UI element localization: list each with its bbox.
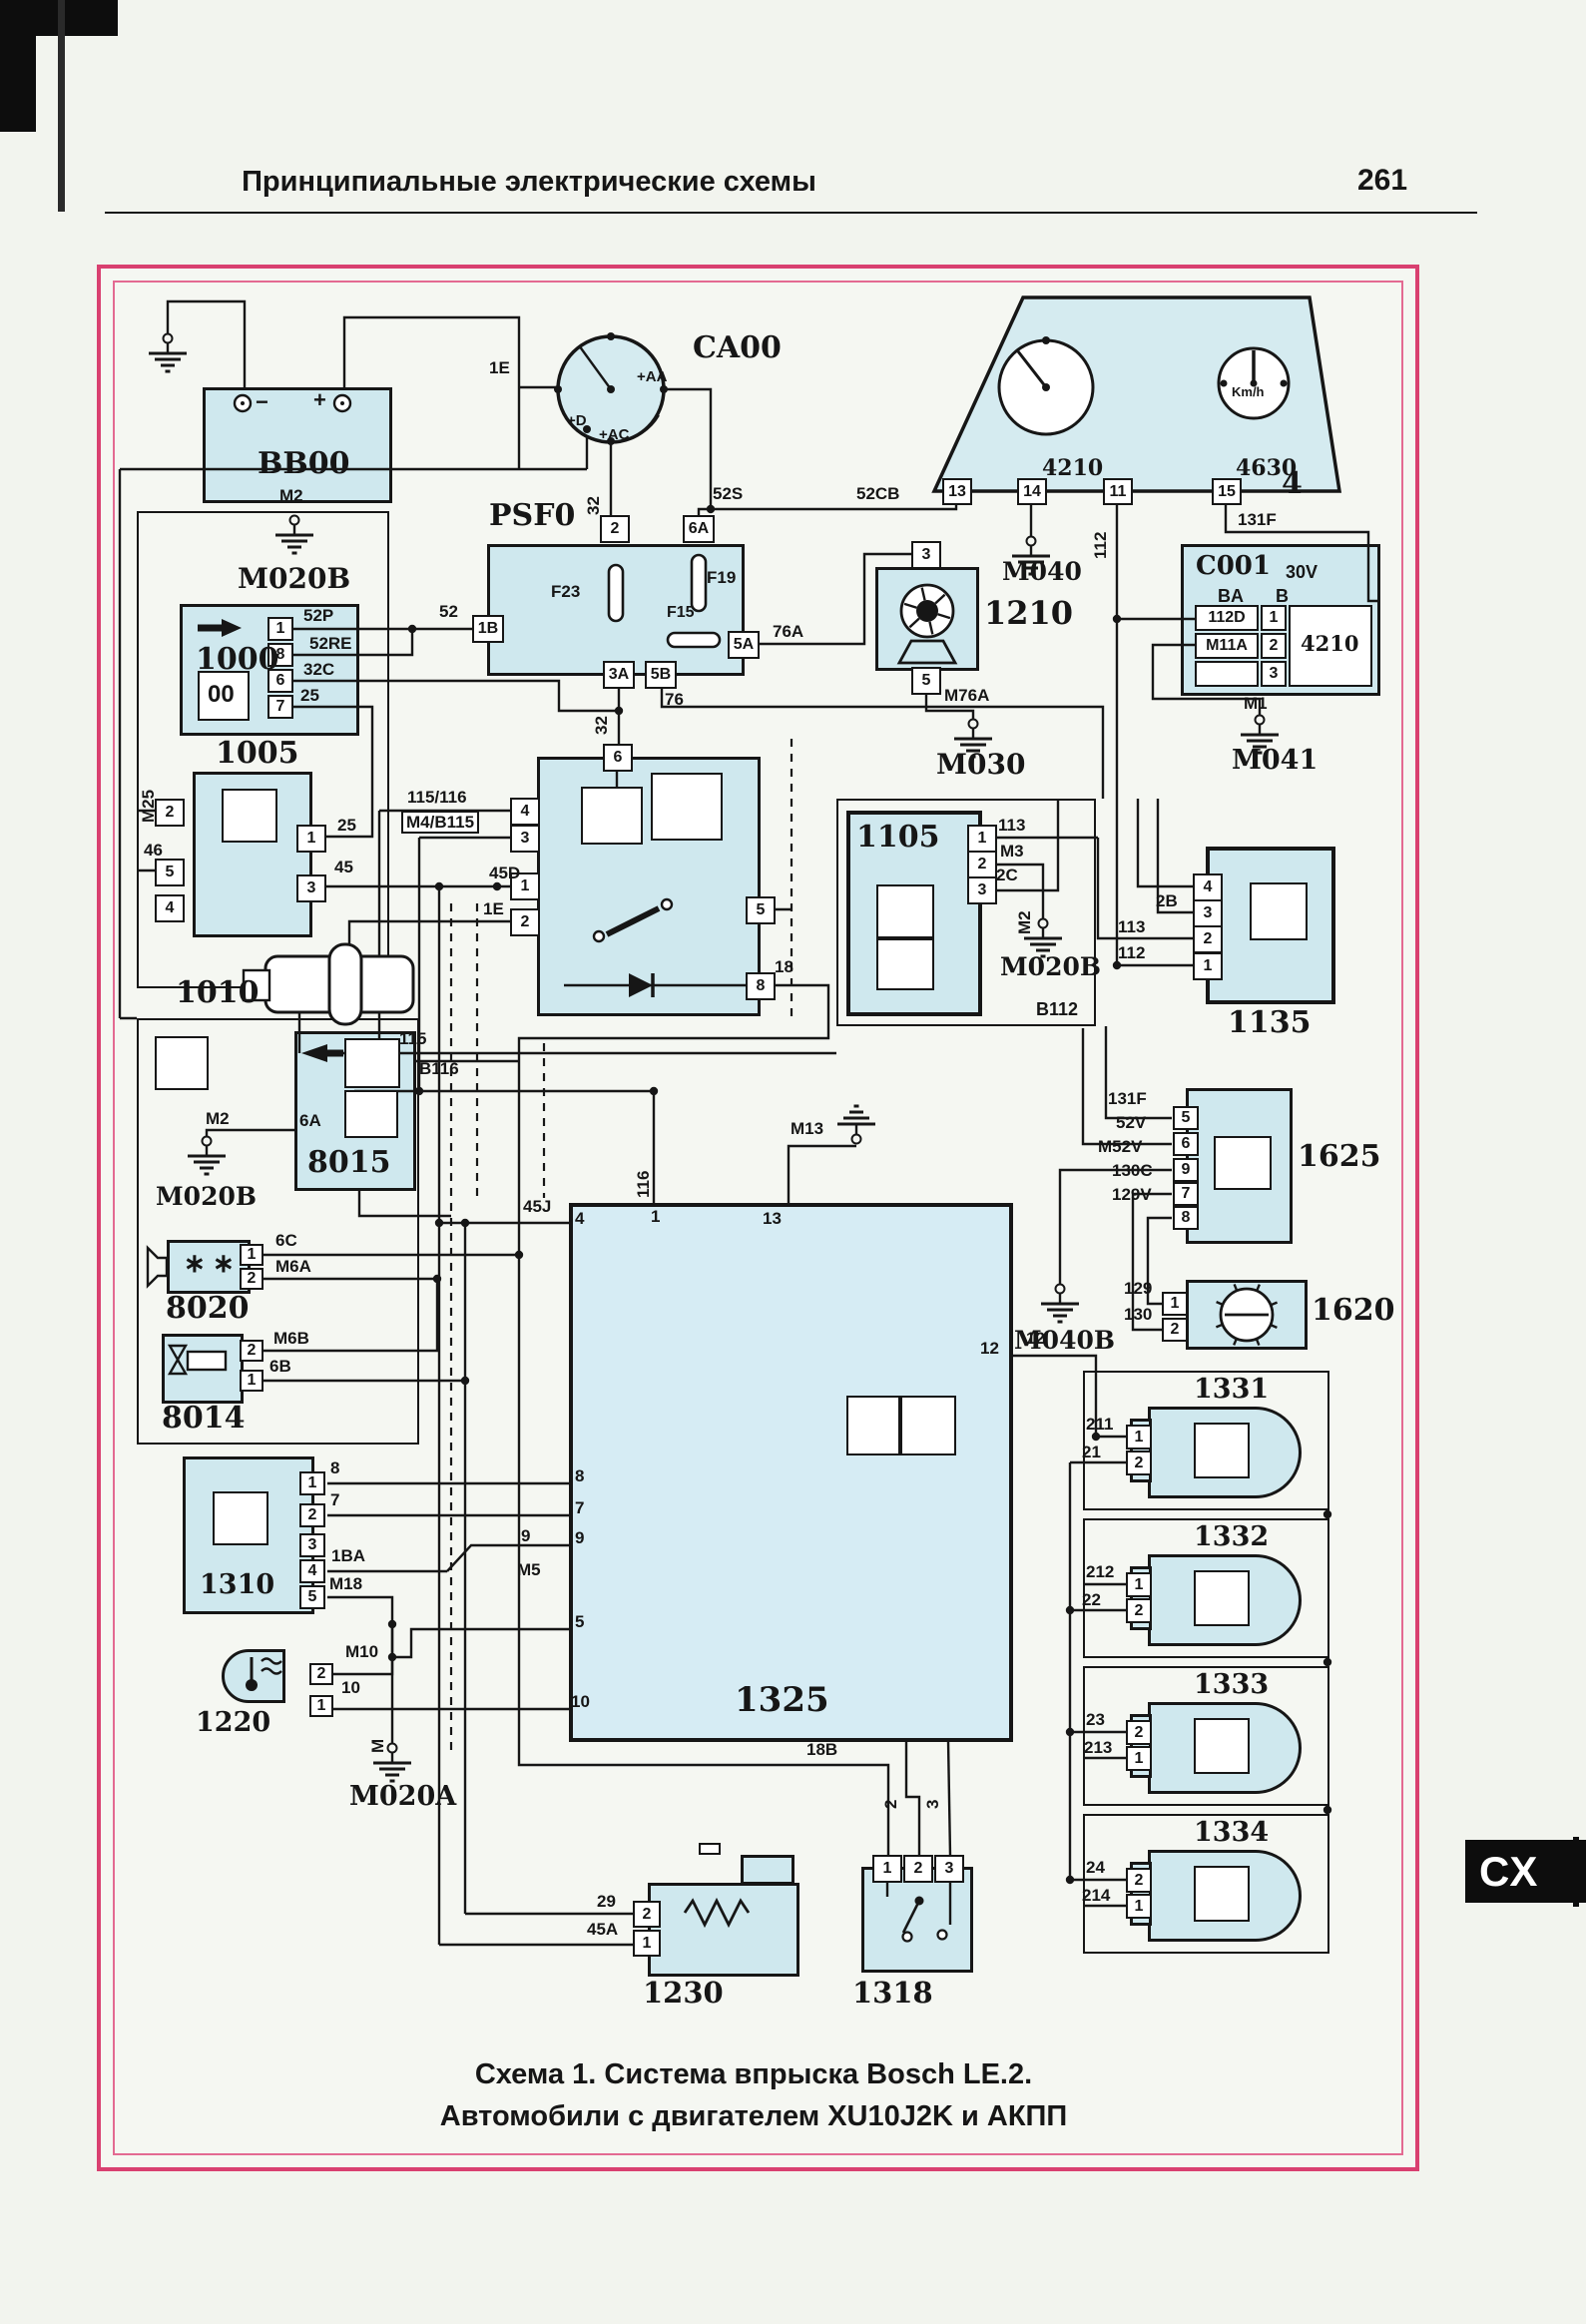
tab-edge-mark (1573, 1837, 1579, 1907)
wire (1138, 799, 1193, 886)
label-M3: M3 (1000, 843, 1024, 860)
label-45J: 45J (523, 1198, 551, 1215)
label-18: 18 (775, 958, 793, 975)
ground-symbol (1041, 1285, 1079, 1323)
label-1010: 1010 (176, 978, 260, 1008)
ground-symbol (149, 334, 187, 372)
junction-dot (1323, 1658, 1331, 1666)
label-45D: 45D (489, 865, 520, 881)
label-M13: M13 (791, 1120, 823, 1137)
label-M25: M25 (140, 790, 157, 823)
junction-dot (1323, 1806, 1331, 1814)
page-title: Принципиальные электрические схемы (190, 166, 868, 199)
label-129: 129 (1124, 1280, 1152, 1297)
label-M6B: M6B (273, 1330, 309, 1347)
wire (519, 985, 888, 1855)
battery-terminals-icon (235, 395, 350, 411)
label-+AC: +AC (599, 427, 629, 442)
pin-1: 1 (1193, 952, 1223, 980)
icon-box (344, 1090, 398, 1138)
junction-dot (461, 1219, 469, 1227)
label-2C: 2C (996, 867, 1018, 883)
label-1E: 1E (483, 900, 504, 917)
pin-1: 1 (296, 825, 326, 853)
label-76: 76 (665, 691, 684, 708)
label-7: 7 (330, 1491, 339, 1508)
label-4210: 4210 (1042, 457, 1103, 479)
pin-2: 2 (1126, 1868, 1152, 1893)
label-+: + (313, 389, 326, 411)
wire (948, 1741, 950, 1855)
pin-3: 3 (911, 541, 941, 569)
pin-1: 1 (1261, 605, 1287, 631)
pin-5: 5 (911, 667, 941, 695)
pin-2: 2 (967, 851, 997, 878)
pin-7: 7 (267, 695, 293, 719)
junction-dot (1066, 1728, 1074, 1736)
label-4210: 4210 (1301, 633, 1358, 654)
label-1105: 1105 (856, 823, 940, 853)
pin-1: 1 (1126, 1572, 1152, 1597)
wire (789, 1146, 856, 1203)
junction-dot (493, 882, 501, 890)
label-1333: 1333 (1194, 1671, 1269, 1698)
ground-symbol (188, 1137, 226, 1175)
wire (662, 675, 1103, 799)
manual-page: Принципиальные электрические схемы 261 С… (0, 0, 1586, 2324)
label-46: 46 (144, 842, 163, 859)
pin-2: 2 (240, 1268, 264, 1290)
speaker-icon (148, 1248, 167, 1286)
pin-8: 8 (1173, 1206, 1199, 1230)
icon-box (1194, 1423, 1250, 1478)
label-6C: 6C (275, 1232, 297, 1249)
label-2: 2 (882, 1800, 899, 1809)
label-29: 29 (597, 1893, 616, 1910)
iac-motor-icon (899, 585, 955, 663)
pin-1: 1 (240, 1244, 264, 1266)
ground-symbol (837, 1106, 875, 1144)
label-9: 9 (575, 1529, 584, 1546)
label-B116: B116 (419, 1060, 459, 1077)
junction-dot (435, 882, 443, 890)
pin-3: 3 (1261, 661, 1287, 687)
label-6B: 6B (269, 1358, 291, 1375)
label-M1: M1 (1244, 695, 1268, 712)
valve-icon (170, 1346, 226, 1374)
icon-box (846, 1396, 900, 1455)
junction-dot (435, 1219, 443, 1227)
pin-4: 4 (299, 1559, 325, 1583)
label-8: 8 (330, 1459, 339, 1476)
label-M040: M040 (1002, 559, 1082, 584)
pin-2: 2 (309, 1663, 333, 1685)
junction-dot (515, 1251, 523, 1259)
label-00: 00 (208, 683, 235, 707)
label-M10: M10 (345, 1643, 378, 1660)
pin-4: 4 (510, 798, 540, 826)
section-tab-cx: CX (1465, 1840, 1586, 1903)
pin-13: 13 (942, 478, 972, 505)
pin-3A: 3A (603, 661, 635, 689)
pin-1: 1 (872, 1855, 902, 1883)
junction-dot (1323, 1510, 1331, 1518)
pin-4: 4 (155, 894, 185, 922)
pin-3: 3 (1193, 899, 1223, 927)
pin-1: 1 (1126, 1425, 1152, 1450)
fuse-h-icon (668, 633, 720, 647)
label-4: 4 (575, 1210, 584, 1227)
icon-box (900, 1396, 956, 1455)
label-1310: 1310 (200, 1571, 274, 1598)
label-45A: 45A (587, 1921, 618, 1938)
label-1210: 1210 (984, 597, 1073, 629)
label-8: 8 (575, 1467, 584, 1484)
pin-1: 1 (1162, 1292, 1188, 1316)
pin-7: 7 (1173, 1182, 1199, 1206)
junction-dot (388, 1653, 396, 1661)
pin-2: 2 (1261, 633, 1287, 659)
page-number: 261 (1357, 164, 1407, 198)
label-21: 21 (1082, 1444, 1101, 1460)
icon-box (1250, 882, 1308, 940)
icon-box (1194, 1718, 1250, 1774)
label-116: 116 (635, 1171, 652, 1198)
fuse-v-icon (692, 555, 706, 611)
label-Km/h: Km/h (1232, 385, 1265, 398)
pin-5: 5 (155, 859, 185, 886)
wire (1098, 838, 1193, 938)
pin-4: 4 (1193, 873, 1223, 901)
icon-box (213, 1491, 268, 1545)
pin-2: 2 (510, 908, 540, 936)
fuse-v-icon (609, 565, 623, 621)
label-1325: 1325 (735, 1683, 829, 1717)
junction-dot (1113, 615, 1121, 623)
wire (293, 707, 372, 837)
label-25: 25 (337, 817, 356, 834)
pin-3: 3 (299, 1533, 325, 1557)
label-1331: 1331 (1194, 1376, 1269, 1403)
label-C001: C001 (1196, 553, 1271, 579)
label-2B: 2B (1156, 892, 1178, 909)
label-25: 25 (300, 687, 319, 704)
label-76A: 76A (773, 623, 803, 640)
pin-5: 5 (746, 896, 776, 924)
wire (207, 1130, 294, 1136)
label-9: 9 (521, 1527, 530, 1544)
icon-box (155, 1036, 209, 1090)
caption-line-1: Схема 1. Система впрыска Bosch LE.2. (354, 2058, 1153, 2091)
junction-dot (433, 1275, 441, 1283)
label-18B: 18B (806, 1741, 837, 1758)
pin-2: 2 (240, 1340, 264, 1362)
label-213: 213 (1084, 1739, 1112, 1756)
pin-3: 3 (296, 874, 326, 902)
label-M6A: M6A (275, 1258, 311, 1275)
label-−: − (256, 391, 268, 413)
arrow-left-icon (301, 1044, 343, 1062)
label-131F: 131F (1108, 1090, 1147, 1107)
pin-1: 1 (633, 1930, 661, 1957)
label-32C: 32C (303, 661, 334, 678)
icon-box (651, 773, 723, 841)
label-M2: M2 (279, 487, 303, 504)
label-BA: BA (1218, 587, 1244, 605)
pin-3: 3 (510, 825, 540, 853)
label-115/116: 115/116 (407, 789, 467, 806)
ground-symbol (275, 516, 313, 554)
label-+AA: +AA (637, 369, 667, 384)
label-1334: 1334 (1194, 1819, 1269, 1846)
icon-box (344, 1038, 400, 1088)
pin-9: 9 (1173, 1158, 1199, 1182)
junction-dot (1092, 1433, 1100, 1441)
pin-M11A: M11A (1195, 633, 1259, 659)
label-52S: 52S (713, 485, 743, 502)
speedometer-icon (1219, 348, 1289, 418)
label-12: 12 (980, 1340, 999, 1357)
label-112: 112 (1092, 532, 1109, 559)
wire (168, 301, 245, 387)
pin-1: 1 (267, 617, 293, 641)
label-M: M (369, 1739, 386, 1753)
label-1005: 1005 (216, 739, 299, 769)
pin-1B: 1B (472, 615, 504, 643)
label-112: 112 (1118, 944, 1145, 961)
label-1625: 1625 (1298, 1142, 1381, 1172)
junction-dot (388, 1620, 396, 1628)
label-10: 10 (341, 1679, 360, 1696)
label-52P: 52P (303, 607, 333, 624)
pin-15: 15 (1212, 478, 1242, 505)
label-5: 5 (575, 1613, 584, 1630)
label-212: 212 (1086, 1563, 1114, 1580)
pin-11: 11 (1103, 478, 1133, 505)
label-214: 214 (1082, 1887, 1110, 1904)
label-∗ ∗: ∗ ∗ (184, 1250, 235, 1276)
label-129V: 129V (1112, 1186, 1152, 1203)
resistor-icon (685, 1901, 749, 1925)
label-113: 113 (1118, 918, 1145, 935)
icon-box (581, 787, 643, 845)
label-22: 22 (1082, 1591, 1101, 1608)
pin-6: 6 (603, 744, 633, 772)
icon-box (876, 884, 934, 938)
junction-dot (1113, 961, 1121, 969)
pin-6A: 6A (683, 515, 715, 543)
pin-8: 8 (746, 972, 776, 1000)
caption-line-2: Автомобили с двигателем XU10J2K и АКПП (354, 2100, 1153, 2133)
label-115: 115 (399, 1030, 426, 1047)
pin-112D: 112D (1195, 605, 1259, 631)
label-30V: 30V (1286, 563, 1318, 581)
junction-dot (408, 625, 416, 633)
label-1135: 1135 (1228, 1008, 1312, 1038)
icon-box (876, 938, 934, 990)
label-7: 7 (575, 1499, 584, 1516)
wire (906, 1741, 919, 1855)
junction-dot (461, 1377, 469, 1385)
pin-2: 2 (903, 1855, 933, 1883)
label-CA00: CA00 (693, 333, 782, 363)
label-M030: M030 (936, 751, 1025, 779)
pin-1: 1 (299, 1471, 325, 1495)
label-1318: 1318 (852, 1979, 933, 2008)
pin-5A: 5A (728, 631, 760, 659)
label-52V: 52V (1116, 1114, 1146, 1131)
coil-1010-icon (244, 944, 413, 1024)
label-130: 130 (1124, 1306, 1152, 1323)
label-113: 113 (998, 817, 1025, 834)
wire (327, 1597, 392, 1624)
throttle-icon (1216, 1284, 1277, 1345)
label-8015: 8015 (307, 1148, 391, 1178)
label-M2: M2 (206, 1110, 230, 1127)
icon-box (1195, 661, 1259, 687)
pin-2: 2 (1126, 1720, 1152, 1745)
label-130C: 130C (1112, 1162, 1153, 1179)
label-+D: +D (567, 413, 587, 428)
arrow-right-icon (198, 619, 242, 637)
junction-dot (415, 1087, 423, 1095)
pin-3: 3 (967, 876, 997, 904)
switch-arm-icon (594, 899, 672, 941)
junction-dot (1066, 1876, 1074, 1884)
icon-box (1214, 1136, 1272, 1190)
label-13: 13 (763, 1210, 782, 1227)
label-8020: 8020 (166, 1294, 250, 1324)
wire (349, 921, 512, 954)
label-32: 32 (593, 716, 610, 735)
label-8014: 8014 (162, 1404, 246, 1434)
label-131F: 131F (1238, 511, 1277, 528)
label-4: 4 (1282, 469, 1303, 499)
label-10: 10 (571, 1693, 590, 1710)
label-1220: 1220 (196, 1709, 270, 1736)
label-M020B: M020B (156, 1184, 257, 1209)
pin-1: 1 (967, 825, 997, 853)
pin-5: 5 (299, 1585, 325, 1609)
label-1: 1 (651, 1208, 660, 1225)
label-3: 3 (924, 1800, 941, 1809)
pin-6: 6 (1173, 1132, 1199, 1156)
label-12: 12 (1026, 1330, 1045, 1347)
label-32: 32 (585, 496, 602, 515)
label-F15: F15 (667, 605, 695, 621)
label-211: 211 (1086, 1416, 1113, 1433)
pin-2: 2 (600, 515, 630, 543)
pin-1: 1 (1126, 1894, 1152, 1919)
label-1230: 1230 (643, 1979, 724, 2008)
label-24: 24 (1086, 1859, 1105, 1876)
pin-1: 1 (1126, 1746, 1152, 1771)
pin-1: 1 (309, 1695, 333, 1717)
thermometer-icon (246, 1657, 281, 1691)
label-M020B: M020B (238, 565, 350, 593)
junction-dot (707, 505, 715, 513)
label-M2: M2 (1016, 910, 1033, 934)
label-B: B (1276, 587, 1289, 605)
label-45: 45 (334, 859, 353, 875)
label-M18: M18 (329, 1575, 362, 1592)
junction-dot (1066, 1606, 1074, 1614)
pin-3: 3 (934, 1855, 964, 1883)
label-M4/B115: M4/B115 (403, 813, 477, 832)
icon-box (1194, 1570, 1250, 1626)
pin-2: 2 (1126, 1451, 1152, 1475)
junction-dot (650, 1087, 658, 1095)
pin-2: 2 (155, 799, 185, 827)
label-F19: F19 (707, 569, 736, 586)
label-M020A: M020A (349, 1783, 456, 1810)
wire (392, 1629, 569, 1657)
label-M52V: M52V (1098, 1138, 1142, 1155)
label-M5: M5 (517, 1561, 541, 1578)
label-23: 23 (1086, 1711, 1105, 1728)
pin-2: 2 (633, 1901, 661, 1928)
label-M041: M041 (1232, 747, 1318, 774)
wire (663, 389, 711, 509)
pin-2: 2 (1126, 1598, 1152, 1623)
label-M76A: M76A (944, 687, 989, 704)
pin-5B: 5B (645, 661, 677, 689)
icon-box (1194, 1866, 1250, 1922)
wire (359, 1191, 451, 1216)
pin-2: 2 (299, 1503, 325, 1527)
pin-14: 14 (1017, 478, 1047, 505)
label-F23: F23 (551, 583, 580, 600)
label-1332: 1332 (1194, 1523, 1269, 1550)
pin-5: 5 (1173, 1106, 1199, 1130)
label-PSF0: PSF0 (489, 501, 575, 531)
label-M020B: M020B (1000, 954, 1101, 979)
pin-2: 2 (1162, 1318, 1188, 1342)
label-52: 52 (439, 603, 458, 620)
label-52RE: 52RE (309, 635, 352, 652)
junction-dot (615, 707, 623, 715)
label-BB00: BB00 (258, 449, 349, 479)
pin-1: 1 (240, 1370, 264, 1392)
label-B112: B112 (1036, 1000, 1078, 1018)
icon-box (699, 1843, 721, 1855)
label-52CB: 52CB (856, 485, 899, 502)
label-1620: 1620 (1312, 1296, 1395, 1326)
icon-box (222, 789, 277, 843)
pin-2: 2 (1193, 925, 1223, 953)
label-6A: 6A (299, 1112, 321, 1129)
label-1BA: 1BA (331, 1547, 365, 1564)
diode-icon (629, 973, 653, 997)
label-1000: 1000 (196, 645, 279, 675)
label-1E: 1E (489, 359, 510, 376)
